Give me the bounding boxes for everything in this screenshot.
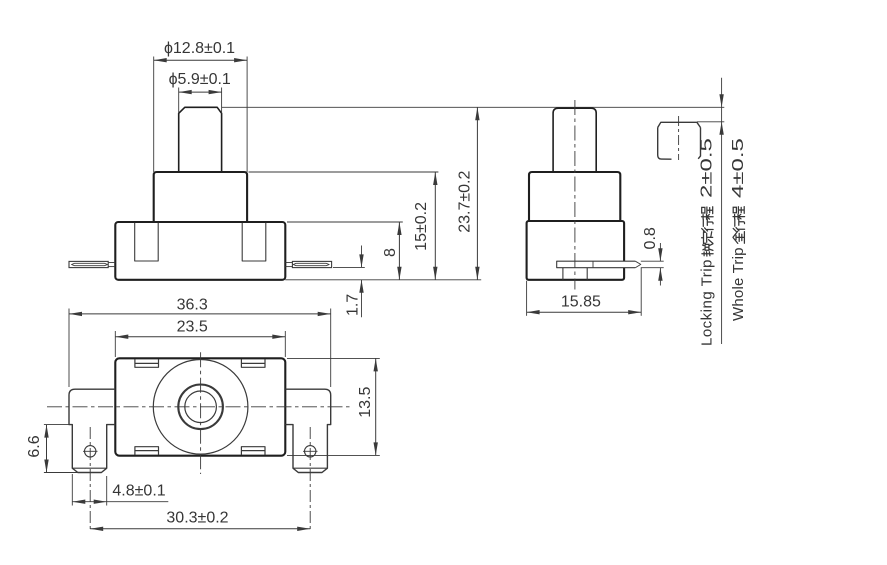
svg-text:6.6: 6.6 [26, 435, 43, 457]
svg-text:36.3: 36.3 [177, 296, 208, 313]
svg-text:23.7±0.2: 23.7±0.2 [457, 171, 474, 233]
svg-text:ϕ12.8±0.1: ϕ12.8±0.1 [164, 40, 235, 57]
svg-text:15±0.2: 15±0.2 [413, 202, 430, 251]
svg-text:0.8: 0.8 [642, 227, 659, 249]
svg-text:15.85: 15.85 [561, 294, 601, 311]
svg-text:4.8±0.1: 4.8±0.1 [112, 483, 165, 500]
svg-text:4±0.5: 4±0.5 [730, 138, 747, 198]
svg-text:Locking Trip: Locking Trip [699, 259, 716, 346]
svg-text:13.5: 13.5 [357, 387, 374, 418]
svg-text:ϕ5.9±0.1: ϕ5.9±0.1 [169, 71, 231, 88]
svg-text:2±0.5: 2±0.5 [698, 138, 715, 198]
svg-text:Whole Trip: Whole Trip [730, 247, 747, 321]
svg-text:1.7: 1.7 [344, 294, 361, 316]
svg-text:8: 8 [382, 248, 399, 257]
svg-text:23.5: 23.5 [177, 318, 208, 335]
svg-text:30.3±0.2: 30.3±0.2 [166, 510, 228, 527]
